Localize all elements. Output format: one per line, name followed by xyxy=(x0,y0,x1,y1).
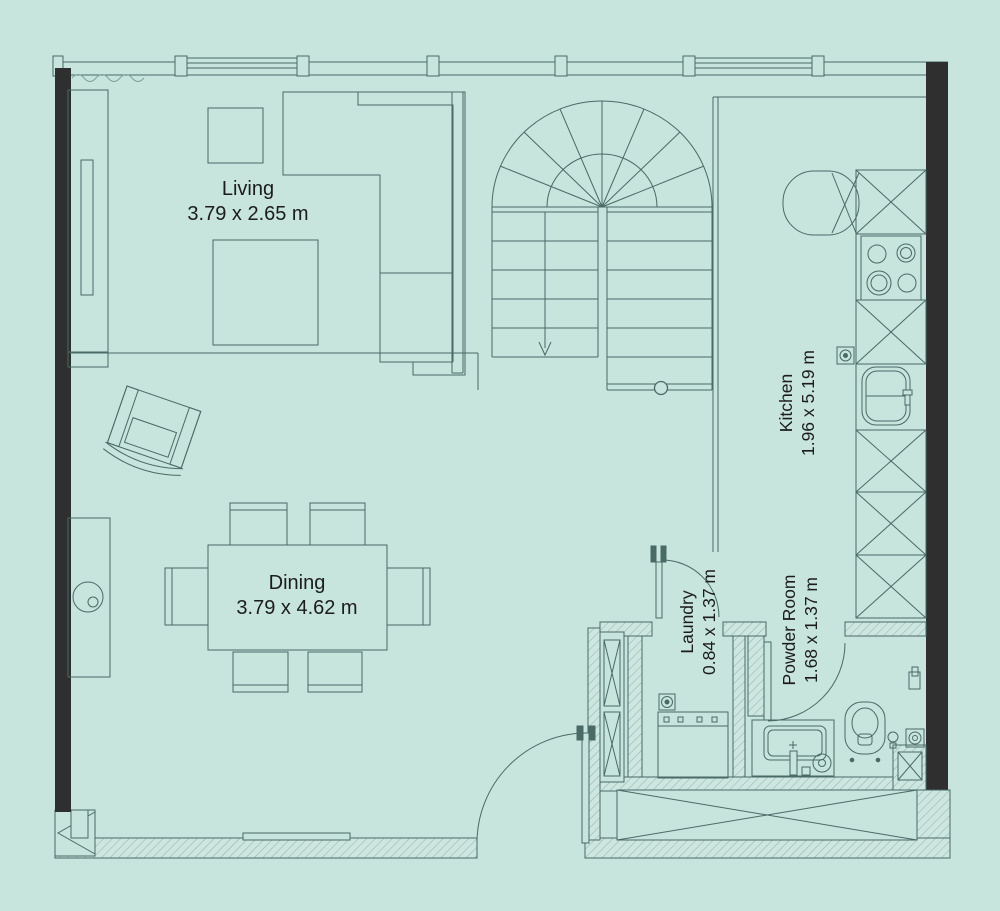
room-dimensions: 1.68 x 1.37 m xyxy=(801,575,823,686)
curtain-symbol xyxy=(72,75,144,82)
floor-drain xyxy=(813,754,831,772)
armchair xyxy=(101,385,203,482)
sideboard xyxy=(68,518,110,677)
sectional-sofa xyxy=(283,92,465,375)
cooktop xyxy=(861,236,921,300)
entry-door xyxy=(477,726,595,843)
window-glazing xyxy=(187,58,812,68)
room-label-kitchen: Kitchen 1.96 x 5.19 m xyxy=(776,350,820,456)
side-table xyxy=(208,108,263,163)
window-sill xyxy=(243,833,350,840)
washing-machine xyxy=(658,712,728,778)
left-wall xyxy=(55,68,71,812)
room-name: Laundry xyxy=(677,569,699,675)
toilet-paper-holder xyxy=(909,667,920,689)
room-name: Kitchen xyxy=(776,350,798,456)
kitchen-fixture xyxy=(837,347,854,364)
room-name: Powder Room xyxy=(779,575,801,686)
room-dimensions: 3.79 x 2.65 m xyxy=(187,202,308,227)
rug xyxy=(213,240,318,345)
stair-newel xyxy=(655,382,668,395)
room-label-dining: Dining 3.79 x 4.62 m xyxy=(236,571,357,621)
room-name: Dining xyxy=(236,571,357,596)
room-name: Living xyxy=(187,177,308,202)
right-wall xyxy=(926,62,948,820)
room-dimensions: 3.79 x 4.62 m xyxy=(236,596,357,621)
living-furniture xyxy=(68,90,465,482)
toilet xyxy=(845,702,885,762)
tv-console xyxy=(68,90,108,367)
stairs-down-arrow xyxy=(539,212,551,355)
floor-plan: Living 3.79 x 2.65 m Dining 3.79 x 4.62 … xyxy=(0,0,1000,911)
vanity-sink xyxy=(752,720,834,776)
staircase xyxy=(70,92,926,552)
laundry-drain xyxy=(659,694,675,710)
kitchen-sink xyxy=(862,367,912,425)
room-label-living: Living 3.79 x 2.65 m xyxy=(187,177,308,227)
room-dimensions: 1.96 x 5.19 m xyxy=(798,350,820,456)
room-label-laundry: Laundry 0.84 x 1.37 m xyxy=(677,569,721,675)
laundry-fixtures xyxy=(658,694,728,778)
refrigerator xyxy=(783,171,859,235)
room-dimensions: 0.84 x 1.37 m xyxy=(699,569,721,675)
room-label-powder-room: Powder Room 1.68 x 1.37 m xyxy=(779,575,823,686)
floor-plan-drawing xyxy=(0,0,1000,911)
